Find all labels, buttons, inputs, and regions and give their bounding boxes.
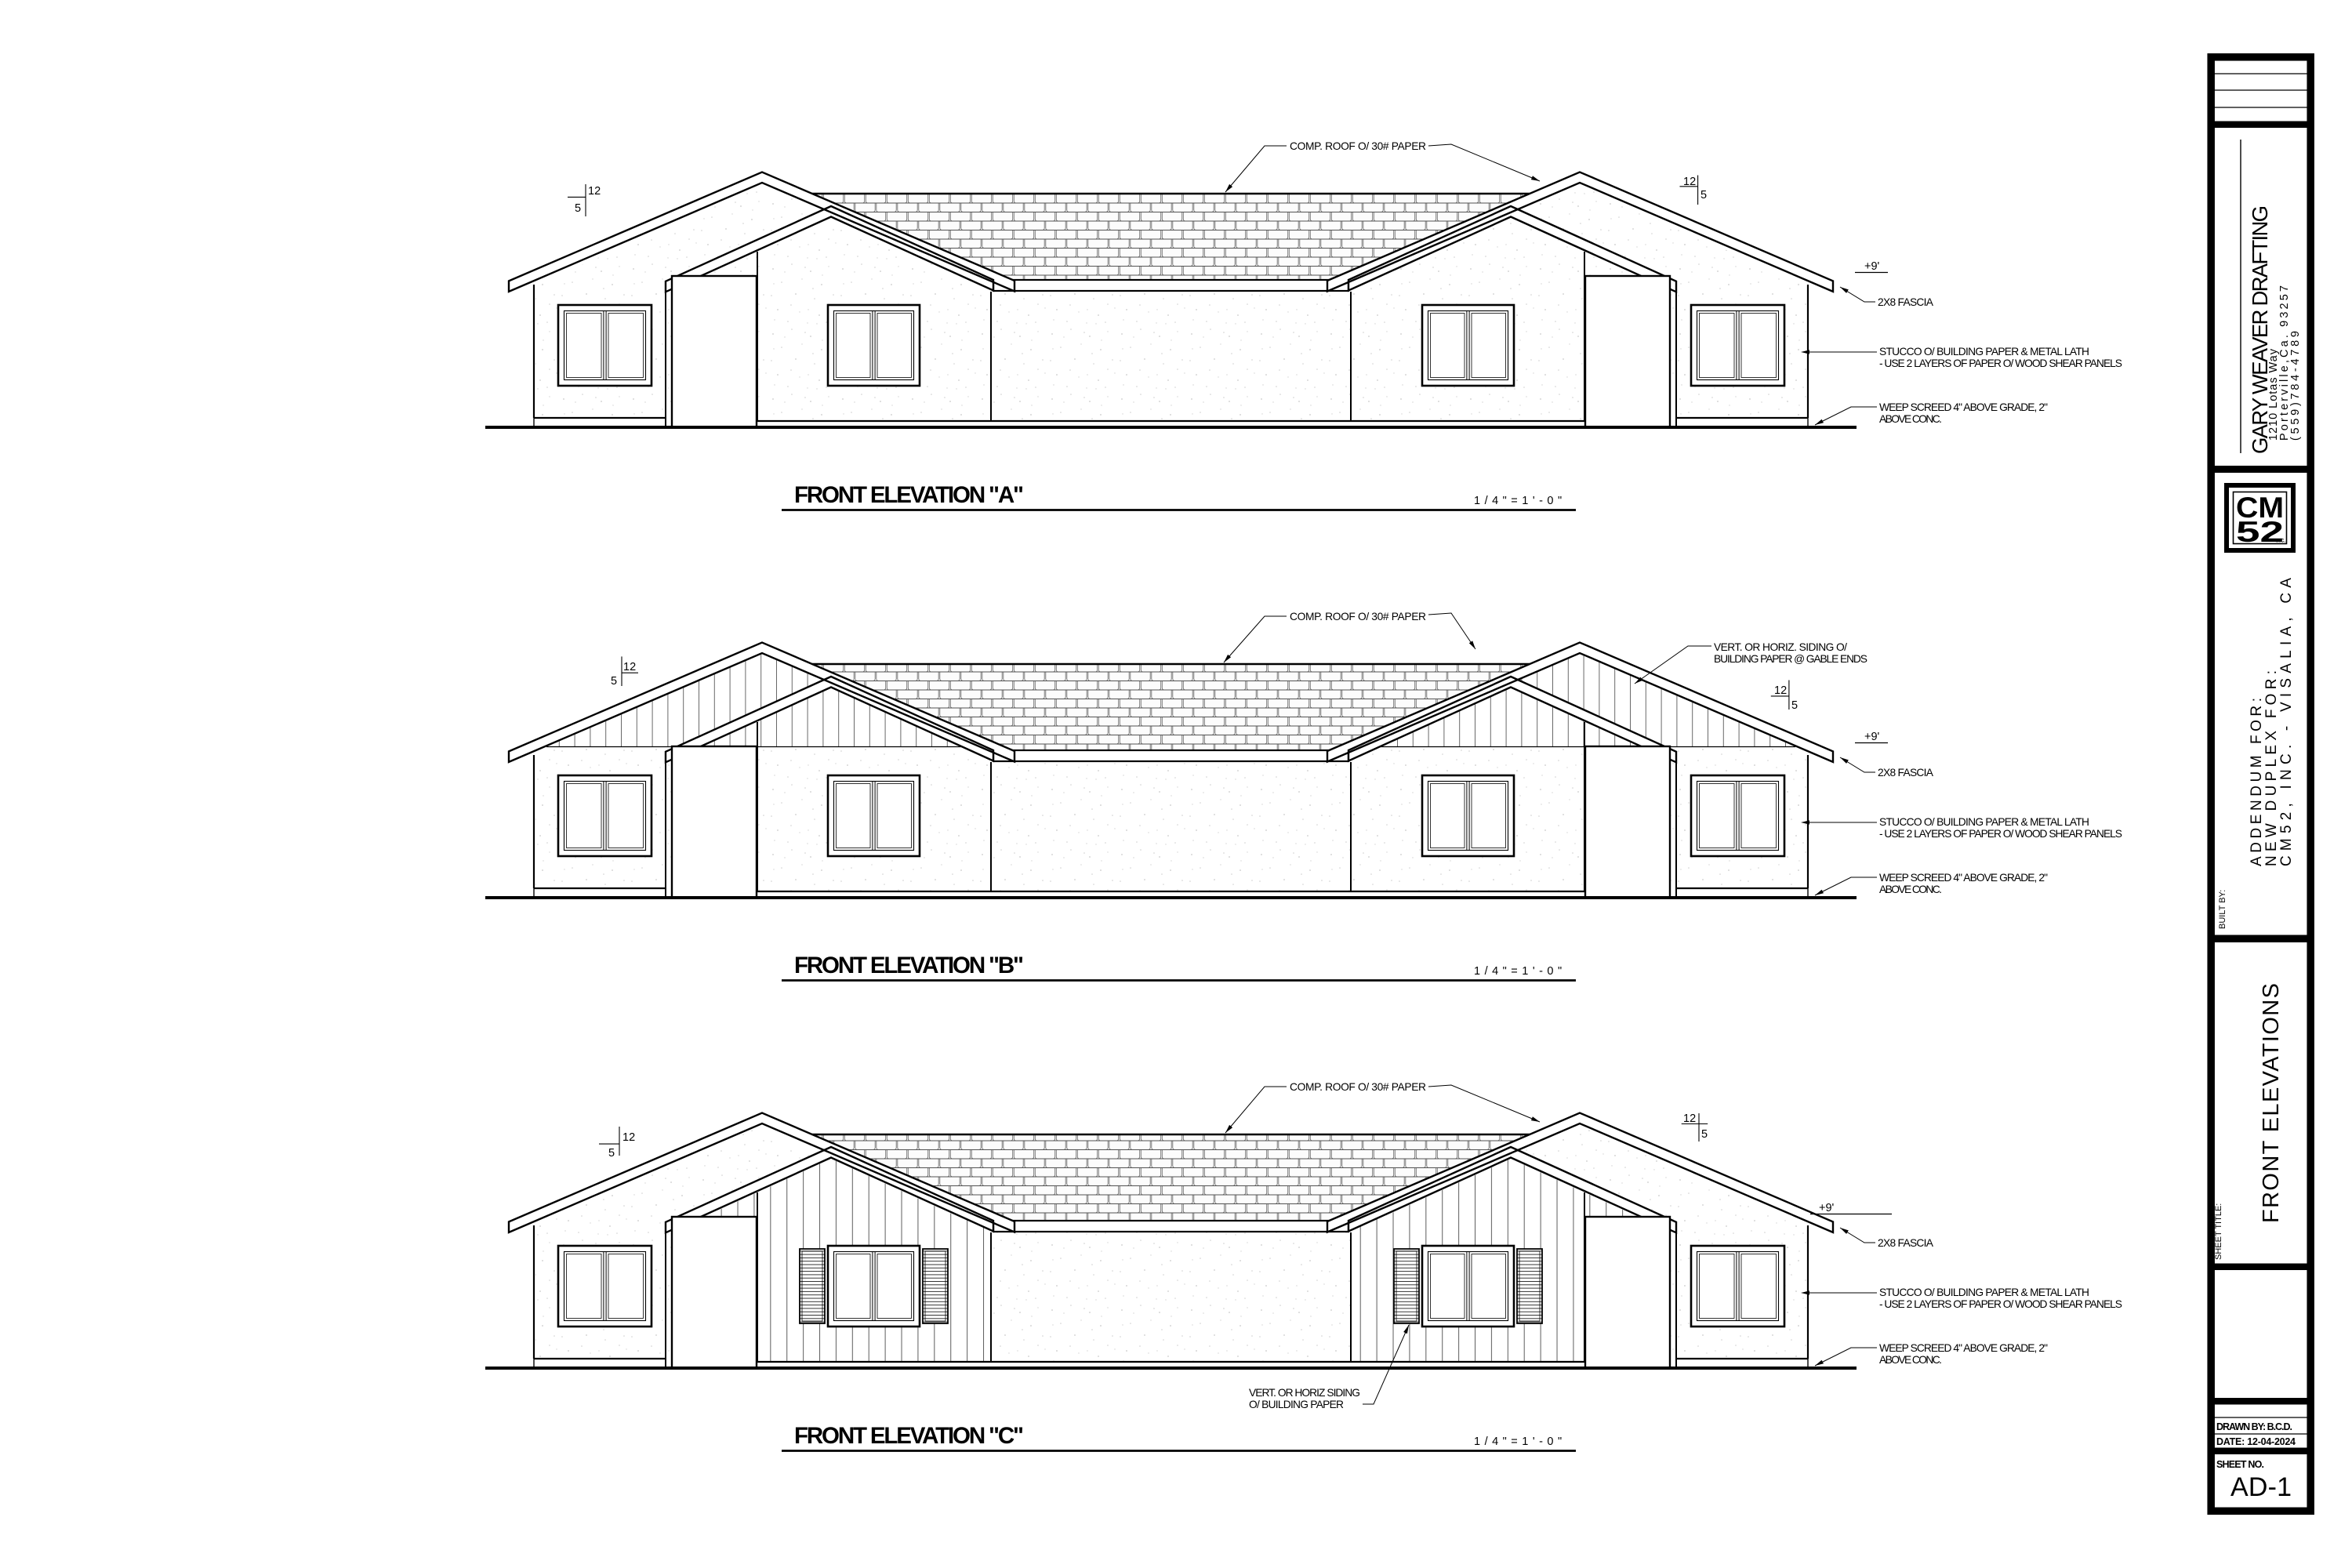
svg-text:WEEP SCREED 4" ABOVE GRADE, 2": WEEP SCREED 4" ABOVE GRADE, 2" (1879, 872, 2048, 884)
svg-text:BUILDING PAPER @ GABLE ENDS: BUILDING PAPER @ GABLE ENDS (1714, 653, 1867, 665)
svg-text:+9': +9' (1819, 1202, 1835, 1214)
svg-text:12: 12 (1683, 176, 1696, 188)
svg-text:+9': +9' (1864, 260, 1880, 273)
svg-text:STUCCO O/ BUILDING PAPER & MET: STUCCO O/ BUILDING PAPER & METAL LATH (1879, 1287, 2089, 1298)
svg-text:12: 12 (1774, 684, 1787, 697)
svg-text:FRONT ELEVATION "B": FRONT ELEVATION "B" (794, 953, 1024, 978)
svg-text:WEEP SCREED 4" ABOVE GRADE, 2": WEEP SCREED 4" ABOVE GRADE, 2" (1879, 1342, 2048, 1354)
svg-text:2X8 FASCIA: 2X8 FASCIA (1878, 296, 1934, 308)
svg-text:ABOVE CONC.: ABOVE CONC. (1879, 1354, 1942, 1366)
svg-text:COMP. ROOF O/ 30# PAPER: COMP. ROOF O/ 30# PAPER (1290, 1081, 1426, 1093)
svg-text:12: 12 (622, 1131, 635, 1144)
svg-text:12: 12 (623, 661, 636, 673)
svg-text:5: 5 (1700, 189, 1707, 201)
svg-text:DATE: 12-04-2024: DATE: 12-04-2024 (2216, 1436, 2296, 1447)
svg-text:SHEET TITLE:: SHEET TITLE: (2214, 1203, 2223, 1260)
svg-text:INC.: INC. (2276, 539, 2285, 544)
svg-text:- USE 2 LAYERS OF PAPER O/ WOO: - USE 2 LAYERS OF PAPER O/ WOOD SHEAR PA… (1879, 828, 2122, 840)
svg-text:5: 5 (1701, 1128, 1708, 1141)
svg-text:1/4"=1'-0": 1/4"=1'-0" (1474, 495, 1566, 507)
svg-text:AD-1: AD-1 (2230, 1472, 2294, 1502)
svg-text:VERT. OR HORIZ. SIDING O/: VERT. OR HORIZ. SIDING O/ (1714, 641, 1847, 653)
svg-text:COMP. ROOF O/ 30# PAPER: COMP. ROOF O/ 30# PAPER (1290, 140, 1426, 152)
svg-text:12: 12 (1683, 1112, 1696, 1125)
svg-text:O/ BUILDING PAPER: O/ BUILDING PAPER (1249, 1399, 1344, 1410)
svg-text:5: 5 (611, 675, 617, 688)
svg-text:- USE 2 LAYERS OF PAPER O/ WOO: - USE 2 LAYERS OF PAPER O/ WOOD SHEAR PA… (1879, 1298, 2122, 1310)
svg-text:2X8 FASCIA: 2X8 FASCIA (1878, 767, 1934, 779)
svg-text:BUILT BY:: BUILT BY: (2218, 890, 2227, 929)
svg-text:DRAWN BY: B.C.D.: DRAWN BY: B.C.D. (2216, 1421, 2292, 1432)
svg-text:STUCCO O/ BUILDING PAPER & MET: STUCCO O/ BUILDING PAPER & METAL LATH (1879, 816, 2089, 828)
svg-text:VERT. OR HORIZ SIDING: VERT. OR HORIZ SIDING (1249, 1387, 1360, 1399)
svg-text:SHEET NO.: SHEET NO. (2216, 1459, 2264, 1470)
svg-text:2X8 FASCIA: 2X8 FASCIA (1878, 1237, 1934, 1249)
svg-text:1/4"=1'-0": 1/4"=1'-0" (1474, 965, 1566, 978)
svg-text:FRONT ELEVATION "C": FRONT ELEVATION "C" (794, 1423, 1024, 1449)
svg-text:1/4"=1'-0": 1/4"=1'-0" (1474, 1436, 1566, 1448)
svg-text:FRONT ELEVATION "A": FRONT ELEVATION "A" (794, 482, 1024, 508)
svg-text:- USE 2 LAYERS OF PAPER O/ WOO: - USE 2 LAYERS OF PAPER O/ WOOD SHEAR PA… (1879, 358, 2122, 369)
svg-text:COMP. ROOF O/ 30# PAPER: COMP. ROOF O/ 30# PAPER (1290, 611, 1426, 622)
svg-text:STUCCO O/ BUILDING PAPER & MET: STUCCO O/ BUILDING PAPER & METAL LATH (1879, 346, 2089, 358)
svg-text:5: 5 (608, 1147, 615, 1160)
svg-text:FRONT ELEVATIONS: FRONT ELEVATIONS (2259, 982, 2284, 1223)
svg-text:WEEP SCREED 4" ABOVE GRADE, 2": WEEP SCREED 4" ABOVE GRADE, 2" (1879, 401, 2048, 413)
svg-text:12: 12 (588, 185, 601, 198)
svg-text:ABOVE CONC.: ABOVE CONC. (1879, 884, 1942, 895)
svg-text:+9': +9' (1864, 731, 1880, 743)
svg-text:5: 5 (575, 202, 581, 215)
svg-text:5: 5 (1791, 699, 1798, 712)
svg-text:ABOVE CONC.: ABOVE CONC. (1879, 413, 1942, 425)
